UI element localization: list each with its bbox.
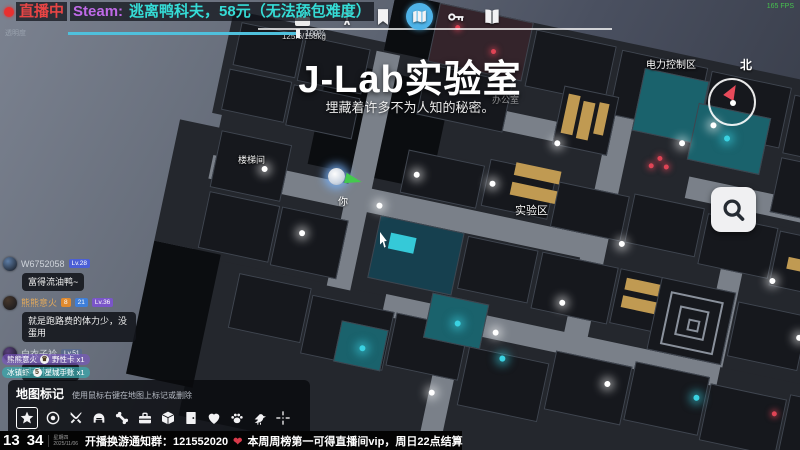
player-label: 你 [338,193,348,208]
chat-message-header: W6752058Lv.28 [3,256,303,271]
stream-title-prefix: Steam: [70,2,126,21]
marker-icon-toolbox[interactable] [136,410,153,427]
marker-icon-bone[interactable] [113,410,130,427]
map-title: J-Lab实验室 [240,48,580,103]
opacity-value: 100% [305,29,325,38]
marker-panel-title: 地图标记 [16,385,64,402]
date: 2025/11/06 [53,441,78,447]
paw-icon [229,410,245,426]
heart-icon: ❤ [231,436,244,448]
chat-message: 熊熊意火821Lv.36就是跑路费的体力少，没蛋用 [3,295,303,342]
swords-icon [68,410,84,426]
map-structure-outline [686,318,700,332]
marker-icon-paw[interactable] [228,410,245,427]
date-column: 星期四 2025/11/06 [48,435,78,447]
tab-keys[interactable] [443,4,469,30]
clock-hours: 13 [3,432,20,449]
heart-icon [206,410,222,426]
opacity-slider-fill [68,32,298,35]
chat-badge: 8 [61,298,71,307]
target-icon [45,410,61,426]
marker-icon-heart[interactable] [205,410,222,427]
marker-icon-helmet[interactable] [90,410,107,427]
player-marker-avatar [328,168,345,185]
keys-icon [446,7,466,27]
marker-icon-target[interactable] [44,410,61,427]
map-area-label: 办公室 [492,93,519,106]
chat-bubble: 就是跑路费的体力少，没蛋用 [22,312,136,342]
bird-icon [252,410,268,426]
bottom-bar: 13 34 星期四 2025/11/06 开播换游通知群：121552020 ❤… [0,431,462,450]
gift-notification: 冰镇虾5星城手账 x1 [2,367,90,378]
stream-title-bar: 直播中 Steam: 逃离鸭科夫，58元（无法舔包难度） [4,2,374,21]
marker-icon-star[interactable] [16,407,38,429]
stream-title-text: 逃离鸭科夫，58元（无法舔包难度） [126,2,374,21]
chat-username: 熊熊意火 [21,296,57,309]
chat-badge: 21 [75,298,88,307]
door-icon [183,410,199,426]
map-area-label: 楼梯间 [238,153,265,166]
star-icon [19,410,35,426]
gift-notifications: 熊熊意火♛野性卡 x1冰镇虾5星城手账 x1 [2,354,90,380]
box-icon [160,410,176,426]
marker-icon-box[interactable] [159,410,176,427]
marker-icon-swords[interactable] [67,410,84,427]
gift-badge-icon: 5 [33,368,42,377]
tasks-icon [373,7,393,27]
magnifier-icon [719,195,749,225]
avatar [3,257,17,271]
map-area-label: 实验区 [515,202,548,218]
opacity-label: 透明度 [5,28,26,38]
marker-panel-hint: 使用鼠标右键在地图上标记或删除 [72,390,192,401]
map-area-label: 电力控制区 [646,56,696,71]
helmet-icon [91,410,107,426]
gift-username: 熊熊意火 [7,354,37,365]
chat-username: W6752058 [21,259,65,269]
compass-north-label: 北 [740,56,752,73]
live-dot-icon [4,7,14,17]
map-subtitle: 埋藏着许多不为人知的秘密。 [240,97,580,116]
gift-badge-icon: ♛ [40,355,49,364]
chat-message-header: 熊熊意火821Lv.36 [3,295,303,310]
marker-icon-bird[interactable] [251,410,268,427]
map-zoom-button[interactable] [711,187,756,232]
gift-item: 星城手账 x1 [45,367,85,378]
compass-center-dot [730,100,736,106]
compass [708,78,756,126]
notice-right: 本周周榜第一可得直播间vip，周日22点结算 [247,436,462,448]
clock-minutes: 34 [27,432,44,449]
map-icon [411,8,428,25]
live-badge: 直播中 [16,2,67,21]
stream-notice: 开播换游通知群：121552020 ❤ 本周周榜第一可得直播间vip，周日22点… [85,433,463,449]
marker-icon-row [16,407,302,429]
marker-panel-header: 地图标记 使用鼠标右键在地图上标记或删除 [16,385,302,402]
avatar [3,296,17,310]
gift-username: 冰镇虾 [7,367,30,378]
screen: J-Lab实验室 埋藏着许多不为人知的秘密。 电力控制区楼梯间实验区办公室 你 … [0,0,800,450]
opacity-slider-thumb[interactable] [296,29,300,38]
bone-icon [114,410,130,426]
fps-counter: 165 FPS [767,3,794,10]
chat-bubble: 富得流油鸭~ [22,273,84,291]
marker-icon-door[interactable] [182,410,199,427]
opacity-slider-track[interactable] [68,32,298,35]
handbook-icon [482,7,502,27]
chat-message: W6752058Lv.28富得流油鸭~ [3,256,303,291]
marker-icon-crosshair[interactable] [274,410,291,427]
chat-badge: Lv.28 [69,259,90,268]
opacity-slider-row: 透明度 100% [5,28,325,38]
crosshair-icon [275,410,291,426]
clock: 13 34 [3,432,43,449]
tab-tasks[interactable] [370,4,396,30]
tab-map[interactable] [406,3,433,30]
gift-notification: 熊熊意火♛野性卡 x1 [2,354,90,365]
notice-left: 开播换游通知群：121552020 [85,436,228,448]
toolbox-icon [137,410,153,426]
tab-handbook[interactable] [479,4,505,30]
chat-badge: Lv.36 [92,298,113,307]
gift-item: 野性卡 x1 [52,354,85,365]
compass-needle-icon [723,82,741,101]
